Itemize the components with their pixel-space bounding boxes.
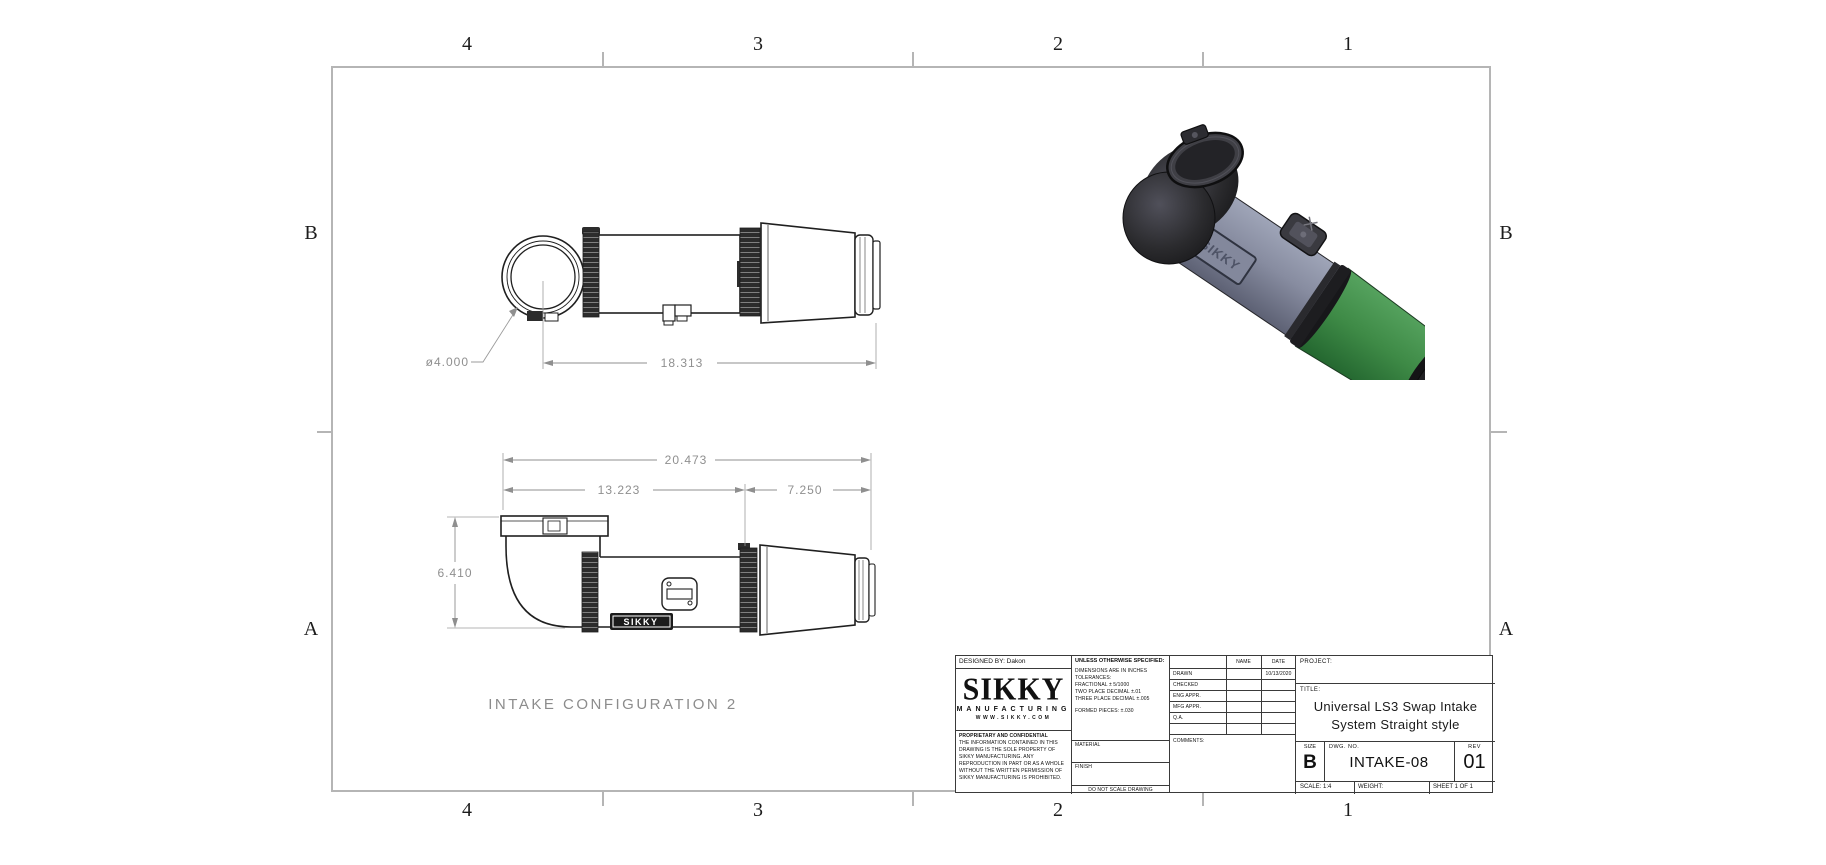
hose-clamp — [740, 548, 757, 632]
dim-height: 6.410 — [437, 566, 472, 580]
zone-label-bottom-2: 2 — [1038, 799, 1078, 822]
approvals-grid: NAME DATE DRAWN 10/13/2020 CHECKED ENG A… — [1169, 656, 1295, 792]
title-label: TITLE: — [1300, 687, 1320, 693]
zone-tick — [317, 431, 333, 433]
material-label: MATERIAL — [1075, 742, 1100, 748]
hose-clamp — [740, 228, 760, 316]
name-header: NAME — [1228, 659, 1259, 665]
zone-tick — [1202, 791, 1204, 806]
dim-length-top: 18.313 — [661, 356, 704, 370]
nipple-fitting — [663, 305, 675, 321]
view-caption: INTAKE CONFIGURATION 2 — [463, 696, 763, 713]
isometric-view: SIKKY — [1105, 100, 1425, 380]
proprietary-notice: PROPRIETARY AND CONFIDENTIAL THE INFORMA… — [956, 731, 1071, 794]
top-orthographic-view: 18.313 ø4.000 — [395, 195, 895, 385]
drawing-title-line1: Universal LS3 Swap Intake — [1296, 698, 1495, 716]
company-logo: SIKKY MANUFACTURING WWW.SIKKY.COM — [956, 669, 1071, 731]
spec-notes: UNLESS OTHERWISE SPECIFIED: DIMENSIONS A… — [1071, 656, 1169, 741]
approval-row-label: Q.A. — [1173, 715, 1183, 721]
elbow-curve — [506, 536, 571, 627]
zone-label-top-1: 1 — [1328, 33, 1368, 56]
zone-tick — [1491, 431, 1507, 433]
no-scale-label: DO NOT SCALE DRAWING — [1088, 787, 1153, 793]
logo-url: WWW.SIKKY.COM — [956, 715, 1071, 721]
hose-clamp — [582, 552, 598, 632]
logo-subtext: MANUFACTURING — [956, 706, 1071, 713]
sheet-value: SHEET 1 OF 1 — [1433, 784, 1473, 790]
designed-by: DESIGNED BY: Dakon — [956, 656, 1071, 669]
title-block: DESIGNED BY: Dakon SIKKY MANUFACTURING W… — [955, 655, 1493, 793]
approval-row-label: ENG APPR. — [1173, 693, 1201, 699]
zone-label-right-a: A — [1486, 618, 1526, 641]
zone-label-top-3: 3 — [738, 33, 778, 56]
dwg-no-label: DWG. NO. — [1329, 744, 1359, 750]
logo-text: SIKKY — [956, 674, 1071, 706]
zone-tick — [912, 791, 914, 806]
project-label: PROJECT: — [1300, 659, 1332, 665]
finish-label: FINISH — [1075, 764, 1092, 770]
zone-label-bottom-4: 4 — [447, 799, 487, 822]
no-scale-cell: DO NOT SCALE DRAWING — [1071, 786, 1169, 794]
zone-label-top-2: 2 — [1038, 33, 1078, 56]
approval-row-label: MFG APPR. — [1173, 704, 1201, 710]
air-filter-cone — [760, 545, 855, 635]
zone-label-left-a: A — [291, 618, 331, 641]
dim-filter: 7.250 — [787, 483, 822, 497]
proprietary-body: THE INFORMATION CONTAINED IN THIS DRAWIN… — [959, 740, 1068, 782]
scale-value: SCALE: 1:4 — [1300, 784, 1331, 790]
spec-heading: UNLESS OTHERWISE SPECIFIED: — [1075, 658, 1166, 664]
spec-line: DIMENSIONS ARE IN INCHES — [1075, 668, 1166, 675]
sikky-badge-text: SIKKY — [623, 617, 658, 627]
spec-formed: FORMED PIECES: ±.030 — [1075, 708, 1166, 715]
date-header: DATE — [1263, 659, 1294, 665]
zone-tick — [602, 52, 604, 67]
size-label: SIZE — [1296, 744, 1324, 750]
zone-tick — [602, 791, 604, 806]
dim-tube: 13.223 — [598, 483, 641, 497]
approval-row-label: CHECKED — [1173, 682, 1198, 688]
approval-row-label: DRAWN — [1173, 671, 1192, 677]
dwg-no-value: INTAKE-08 — [1324, 754, 1454, 771]
zone-tick — [912, 52, 914, 67]
rev-label: REV — [1454, 744, 1495, 750]
front-orthographic-view: SIKKY 20.473 13.223 7.250 — [385, 440, 895, 650]
spec-line: FRACTIONAL ± 5/1000 — [1075, 682, 1166, 689]
spec-line: TWO PLACE DECIMAL ±.01 — [1075, 689, 1166, 696]
zone-label-right-b: B — [1486, 222, 1526, 245]
drawing-sheet-canvas: 4 3 2 1 4 3 2 1 B A B A — [0, 0, 1826, 865]
clamp-tab — [527, 311, 543, 321]
proprietary-heading: PROPRIETARY AND CONFIDENTIAL — [959, 733, 1068, 740]
weight-value: WEIGHT: — [1358, 784, 1383, 790]
zone-label-bottom-1: 1 — [1328, 799, 1368, 822]
zone-label-left-b: B — [291, 222, 331, 245]
drawn-date: 10/13/2020 — [1262, 671, 1295, 677]
zone-label-top-4: 4 — [447, 33, 487, 56]
size-value: B — [1296, 752, 1324, 774]
drawing-title-line2: System Straight style — [1296, 716, 1495, 734]
finish-cell: FINISH — [1071, 763, 1169, 786]
zone-label-bottom-3: 3 — [738, 799, 778, 822]
rev-value: 01 — [1454, 751, 1495, 774]
comments-label: COMMENTS: — [1173, 738, 1204, 744]
dim-diameter: ø4.000 — [426, 355, 469, 369]
spec-line: TOLERANCES: — [1075, 675, 1166, 682]
air-filter-cone — [761, 223, 855, 323]
spec-line: THREE PLACE DECIMAL ±.005 — [1075, 696, 1166, 703]
dim-overall: 20.473 — [665, 453, 708, 467]
zone-tick — [1202, 52, 1204, 67]
hose-clamp — [583, 232, 599, 317]
title-area: PROJECT: TITLE: Universal LS3 Swap Intak… — [1295, 656, 1494, 794]
material-cell: MATERIAL — [1071, 741, 1169, 763]
